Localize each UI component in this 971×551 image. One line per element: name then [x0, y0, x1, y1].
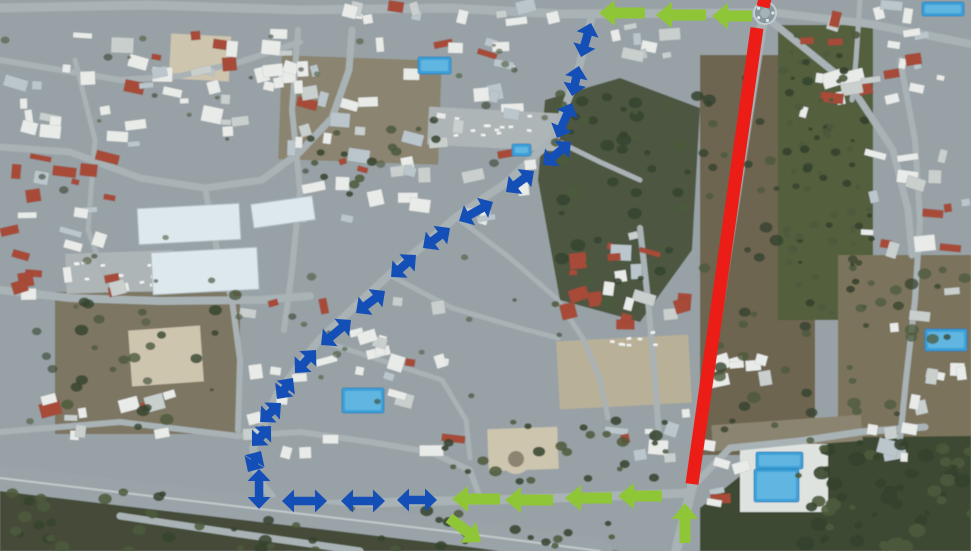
photo-backdrop: [0, 0, 971, 551]
aerial-map: [0, 0, 971, 551]
satellite-image: [0, 0, 971, 551]
